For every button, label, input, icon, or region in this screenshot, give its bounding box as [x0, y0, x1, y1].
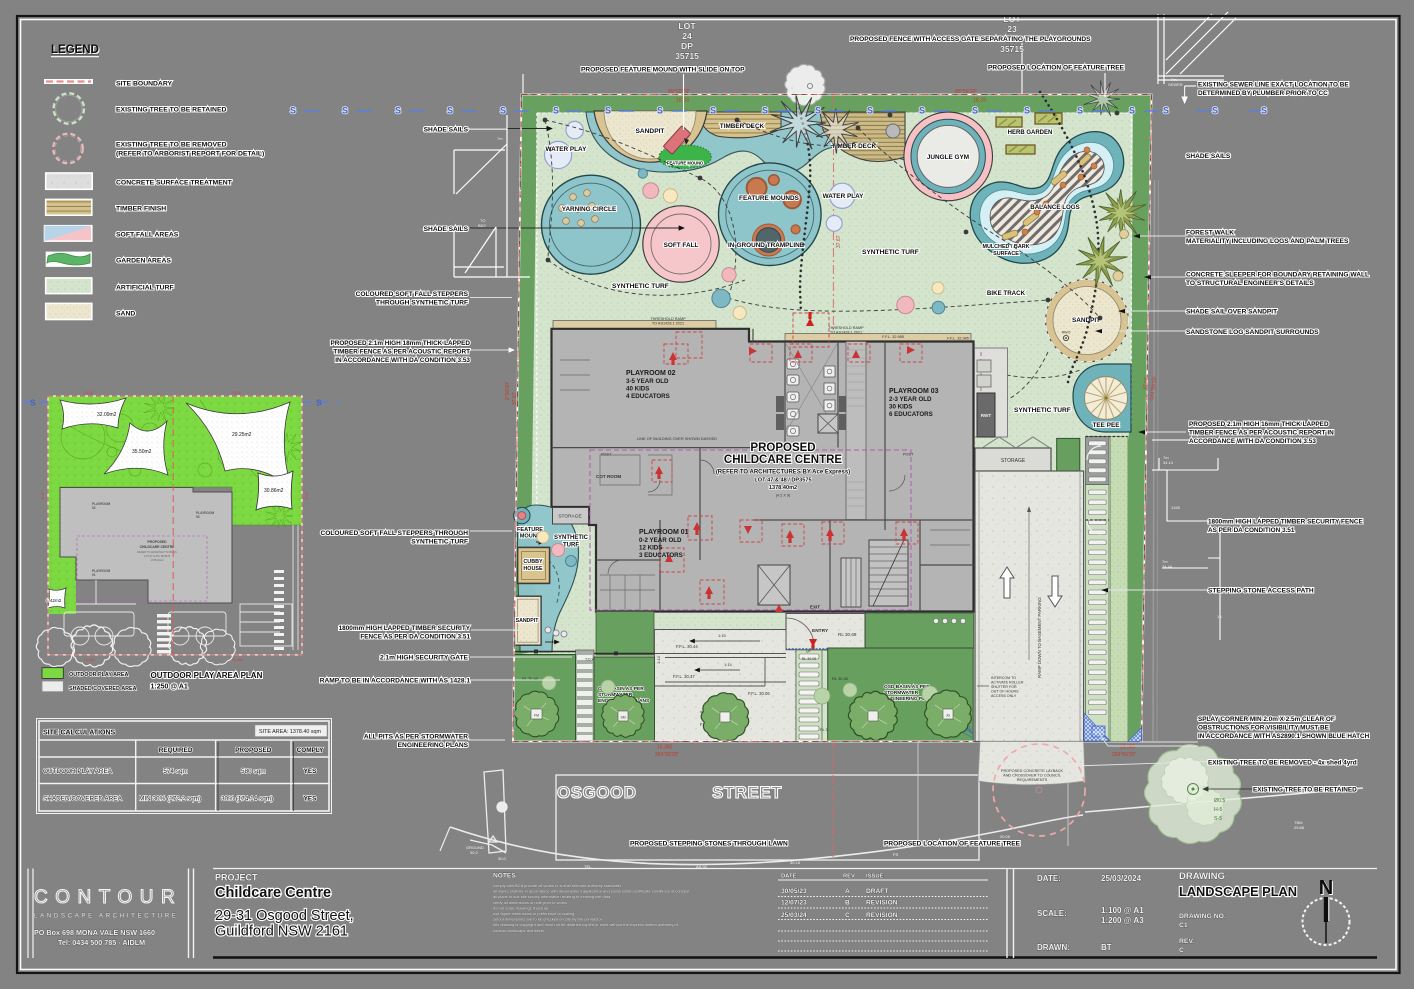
- svg-text:verify all dimensions on site: verify all dimensions on site prior to w…: [493, 900, 567, 905]
- svg-text:FM: FM: [534, 714, 539, 718]
- svg-text:1:14: 1:14: [724, 662, 733, 667]
- svg-text:S: S: [1163, 106, 1169, 116]
- svg-text:LANDSCAPE ARCHITECTURE: LANDSCAPE ARCHITECTURE: [34, 913, 179, 920]
- svg-text:2.0x2.5: 2.0x2.5: [1092, 731, 1103, 735]
- svg-text:PLAYROOM 03: PLAYROOM 03: [889, 388, 939, 395]
- svg-text:BIKE TRACK: BIKE TRACK: [987, 290, 1026, 297]
- svg-text:H-5: H-5: [1214, 807, 1222, 813]
- svg-text:269°59'20": 269°59'20": [655, 752, 679, 758]
- svg-text:S: S: [342, 106, 348, 116]
- svg-text:1800mm HIGH LAPPED TIMBER SECU: 1800mm HIGH LAPPED TIMBER SECURITY FENCE: [1208, 519, 1363, 526]
- svg-text:32.09m2: 32.09m2: [97, 412, 117, 418]
- svg-text:TO AS1428.1 2021: TO AS1428.1 2021: [652, 322, 684, 326]
- svg-text:STORAGE: STORAGE: [558, 514, 581, 520]
- svg-text:SANDPIT: SANDPIT: [1072, 317, 1100, 324]
- svg-text:S: S: [290, 106, 296, 116]
- svg-text:THRESHOLD RAMP: THRESHOLD RAMP: [828, 326, 864, 330]
- svg-text:18.33: 18.33: [232, 391, 241, 395]
- svg-text:RL 30.05: RL 30.05: [802, 657, 816, 661]
- svg-text:37.67: 37.67: [41, 491, 45, 500]
- svg-text:BALANCE LOGS: BALANCE LOGS: [1030, 204, 1080, 211]
- svg-text:LINE OF BUILDING OVER SHOWN DA: LINE OF BUILDING OVER SHOWN DASHED: [637, 436, 717, 441]
- svg-text:CHILDCARE CENTRE: CHILDCARE CENTRE: [140, 545, 176, 549]
- svg-text:RWT: RWT: [981, 413, 992, 418]
- svg-text:AND CROSSOVER TO COUNCIL: AND CROSSOVER TO COUNCIL: [1003, 774, 1061, 778]
- svg-text:YES: YES: [304, 796, 318, 803]
- svg-text:F.F.L. 30.06: F.F.L. 30.06: [748, 691, 770, 696]
- svg-text:PO Box 698 MONA VALE NSW 1660: PO Box 698 MONA VALE NSW 1660: [34, 928, 155, 937]
- svg-text:PS: PS: [893, 852, 899, 857]
- svg-text:PROPOSED LOCATION OF FEATURE T: PROPOSED LOCATION OF FEATURE TREE: [884, 841, 1021, 848]
- svg-text:S: S: [815, 106, 821, 116]
- svg-text:JG: JG: [946, 714, 951, 718]
- svg-text:S: S: [447, 106, 453, 116]
- svg-text:BT: BT: [1101, 943, 1112, 952]
- svg-text:SANDPIT: SANDPIT: [516, 618, 540, 624]
- svg-text:2.1m HIGH SECURITY GATE: 2.1m HIGH SECURITY GATE: [380, 655, 469, 662]
- svg-text:ARTIFICIAL TURF: ARTIFICIAL TURF: [116, 285, 174, 292]
- svg-text:37.67: 37.67: [305, 491, 309, 500]
- svg-text:1:14: 1:14: [656, 655, 661, 664]
- svg-text:S: S: [605, 106, 611, 116]
- svg-text:1:200 @ A3: 1:200 @ A3: [1101, 916, 1144, 925]
- svg-text:02: 02: [92, 506, 96, 510]
- svg-text:N: N: [1319, 877, 1333, 899]
- svg-text:S: S: [762, 106, 768, 116]
- svg-text:S: S: [867, 106, 873, 116]
- svg-text:ENTRY: ENTRY: [812, 628, 829, 634]
- svg-text:DRAWN:: DRAWN:: [1037, 943, 1070, 952]
- svg-text:SITE BOUNDARY: SITE BOUNDARY: [116, 81, 172, 88]
- svg-text:OUT OF HOURS: OUT OF HOURS: [991, 690, 1019, 694]
- svg-text:setout dimensions are to be ch: setout dimensions are to be checked on s…: [493, 917, 603, 922]
- svg-text:LOT 47 & 48 / DP3575: LOT 47 & 48 / DP3575: [144, 554, 171, 558]
- svg-text:CONTOUR: CONTOUR: [34, 887, 182, 908]
- svg-text:16.365: 16.365: [84, 658, 94, 662]
- svg-text:TO STRUCTURAL ENGINEER'S DETAI: TO STRUCTURAL ENGINEER'S DETAILS: [1186, 280, 1314, 287]
- svg-text:ACCESS ONLY: ACCESS ONLY: [991, 694, 1017, 698]
- svg-text:EXISTING TREE TO BE RETAINED: EXISTING TREE TO BE RETAINED: [1253, 787, 1357, 794]
- svg-text:IN-GROUND TRAMPLINE: IN-GROUND TRAMPLINE: [728, 242, 805, 249]
- svg-text:S: S: [1024, 106, 1030, 116]
- svg-text:CHILDCARE CENTRE: CHILDCARE CENTRE: [724, 454, 843, 466]
- svg-text:STORMWATER: STORMWATER: [884, 690, 919, 696]
- svg-text:Guildford NSW 2161: Guildford NSW 2161: [215, 924, 348, 940]
- svg-text:S: S: [395, 106, 401, 116]
- svg-text:TIMBER FINISH: TIMBER FINISH: [116, 206, 166, 213]
- svg-text:35715: 35715: [675, 51, 699, 61]
- svg-text:EXISTING SEWER LINE EXACT LOCA: EXISTING SEWER LINE EXACT LOCATION TO BE: [1198, 82, 1349, 89]
- svg-text:TURF: TURF: [563, 543, 579, 549]
- svg-text:30.86m2: 30.86m2: [264, 488, 284, 494]
- svg-text:BDY: BDY: [478, 223, 487, 228]
- svg-text:(4.2 X 9): (4.2 X 9): [776, 494, 791, 498]
- svg-text:STEPPING STONE ACCESS PATH: STEPPING STONE ACCESS PATH: [1208, 588, 1314, 595]
- svg-text:REFER TO ARCHITECT'S DWGS: REFER TO ARCHITECT'S DWGS: [137, 550, 177, 554]
- svg-text:30.0: 30.0: [498, 856, 507, 861]
- svg-text:37.67: 37.67: [512, 392, 518, 405]
- svg-text:PROPOSED 2.1m HIGH 18mm THICK: PROPOSED 2.1m HIGH 18mm THICK LAPPED: [330, 340, 470, 347]
- svg-text:35.50m2: 35.50m2: [132, 449, 152, 455]
- svg-text:S: S: [1129, 106, 1135, 116]
- svg-text:SHADED/COVERED AREA: SHADED/COVERED AREA: [69, 686, 137, 692]
- svg-text:REVISION: REVISION: [866, 912, 898, 919]
- svg-text:F.F.L. 30.37: F.F.L. 30.37: [673, 674, 695, 679]
- svg-text:3 EDUCATORS: 3 EDUCATORS: [639, 552, 683, 559]
- svg-text:S: S: [30, 398, 36, 408]
- svg-text:IN ACCORDANCE WITH AS2890.1 SH: IN ACCORDANCE WITH AS2890.1 SHOWN BLUE H…: [1198, 733, 1370, 740]
- svg-text:SYNTHETIC TURF: SYNTHETIC TURF: [411, 539, 468, 546]
- svg-text:SITE CALCULATIONS: SITE CALCULATIONS: [43, 730, 116, 737]
- svg-text:STREET: STREET: [712, 783, 782, 802]
- svg-text:S: S: [500, 106, 506, 116]
- svg-text:FEATURE MOUNDS: FEATURE MOUNDS: [739, 195, 800, 202]
- svg-text:S-5: S-5: [1214, 816, 1222, 822]
- svg-text:REVISION: REVISION: [866, 900, 898, 907]
- svg-text:RAMP DOWN TO BASEMENT PARKING: RAMP DOWN TO BASEMENT PARKING: [1037, 597, 1042, 678]
- svg-text:MIN 30% (172.2 sqm): MIN 30% (172.2 sqm): [139, 796, 201, 803]
- svg-text:269°59'20": 269°59'20": [1112, 752, 1136, 758]
- svg-text:S: S: [919, 106, 925, 116]
- svg-text:COLOURED SOFT FALL STEPPERS TH: COLOURED SOFT FALL STEPPERS THROUGH: [320, 530, 468, 537]
- svg-text:WATER PLAY: WATER PLAY: [546, 146, 588, 153]
- svg-text:1:250 @ A1: 1:250 @ A1: [151, 684, 188, 691]
- svg-text:OSGOOD: OSGOOD: [557, 783, 637, 802]
- svg-text:S: S: [316, 398, 322, 408]
- svg-text:POST: POST: [903, 453, 914, 457]
- svg-text:ALL PITS AS PER STORMWATER: ALL PITS AS PER STORMWATER: [364, 734, 468, 741]
- svg-text:MATERIALITY INCLUDING LOGS AND: MATERIALITY INCLUDING LOGS AND PALM TREE…: [1186, 238, 1349, 245]
- svg-text:574 sqm: 574 sqm: [163, 768, 188, 775]
- svg-text:COLOURED SOFT FALL STEPPERS: COLOURED SOFT FALL STEPPERS: [356, 291, 469, 298]
- svg-text:IN ACCORDANCE WITH DA CONDITIO: IN ACCORDANCE WITH DA CONDITION 3.53: [335, 357, 470, 364]
- svg-text:S: S: [710, 106, 716, 116]
- svg-text:PROJECT: PROJECT: [215, 873, 258, 883]
- svg-text:16.365: 16.365: [657, 745, 673, 751]
- svg-text:STORAGE: STORAGE: [1001, 458, 1026, 464]
- svg-text:1:100 @ A1: 1:100 @ A1: [1101, 906, 1144, 915]
- svg-text:PROPOSED: PROPOSED: [235, 747, 272, 754]
- svg-text:contour landscape architects: contour landscape architects: [493, 928, 544, 933]
- svg-text:PROPOSED 2.1m HIGH 16mm THICK: PROPOSED 2.1m HIGH 16mm THICK LAPPED: [1189, 421, 1329, 428]
- svg-text:OBSTRUCTIONS FOR VISIBILITY MU: OBSTRUCTIONS FOR VISIBILITY MUST BE: [1198, 725, 1330, 732]
- svg-text:ISSUE: ISSUE: [866, 874, 884, 880]
- svg-text:DRAWING: DRAWING: [1179, 871, 1225, 882]
- svg-text:DATE: DATE: [781, 874, 796, 880]
- svg-text:DETERMINED BY PLUMBER PRIOR TO: DETERMINED BY PLUMBER PRIOR TO CC: [1198, 90, 1328, 97]
- svg-text:FOREST WALK: FOREST WALK: [1186, 230, 1234, 237]
- svg-text:B: B: [845, 900, 850, 907]
- svg-text:SAND: SAND: [116, 311, 135, 318]
- svg-text:29.88: 29.88: [1294, 825, 1305, 830]
- svg-text:HERB GARDEN: HERB GARDEN: [1008, 130, 1053, 136]
- svg-text:DATE:: DATE:: [1037, 874, 1061, 883]
- svg-text:COMPLY: COMPLY: [297, 747, 324, 754]
- svg-text:12 KIDS: 12 KIDS: [639, 545, 662, 552]
- svg-text:AS PER DA CONDITION 3.51: AS PER DA CONDITION 3.51: [1208, 527, 1295, 534]
- svg-text:F.F.L. 32.985: F.F.L. 32.985: [947, 337, 969, 341]
- svg-text:F.F.L. 32.985: F.F.L. 32.985: [882, 335, 904, 339]
- svg-text:30.2: 30.2: [470, 850, 479, 855]
- svg-text:Tel: 0434 500 785 - AIDLM: Tel: 0434 500 785 - AIDLM: [58, 938, 145, 947]
- svg-text:REQUIRED: REQUIRED: [159, 747, 193, 754]
- svg-text:2°30'00": 2°30'00": [505, 381, 511, 400]
- svg-text:4 EDUCATORS: 4 EDUCATORS: [626, 393, 670, 400]
- svg-text:SYNTHETIC TURF: SYNTHETIC TURF: [862, 249, 919, 256]
- svg-text:COT ROOM: COT ROOM: [596, 474, 621, 479]
- svg-text:12/07/23: 12/07/23: [781, 900, 807, 907]
- svg-text:SHUTTER FOR: SHUTTER FOR: [991, 685, 1017, 689]
- svg-text:SM: SM: [620, 716, 625, 720]
- svg-text:C: C: [1179, 947, 1184, 954]
- svg-text:18.33: 18.33: [84, 391, 93, 395]
- svg-text:0-2 YEAR OLD: 0-2 YEAR OLD: [639, 537, 682, 544]
- svg-text:30 KIDS: 30 KIDS: [889, 404, 912, 411]
- svg-text:SYNTHETIC: SYNTHETIC: [554, 535, 589, 541]
- svg-text:PROPOSED FEATURE MOUND WITH SL: PROPOSED FEATURE MOUND WITH SLIDE ON TOP: [581, 67, 745, 74]
- svg-text:TIMBER FENCE AS PER ACOUSTIC R: TIMBER FENCE AS PER ACOUSTIC REPORT IN: [1189, 430, 1334, 437]
- svg-text:Ø0.5: Ø0.5: [1214, 798, 1225, 804]
- svg-text:03: 03: [196, 515, 200, 519]
- svg-text:OUTDOOR PLAY AREA: OUTDOOR PLAY AREA: [69, 672, 129, 678]
- svg-text:SHADED/COVERED AREA: SHADED/COVERED AREA: [43, 796, 123, 803]
- svg-text:LOT: LOT: [678, 21, 696, 31]
- svg-text:REQUIREMENTS: REQUIREMENTS: [1017, 778, 1048, 782]
- svg-text:comply with BCA provide all wo: comply with BCA provide all works to sui…: [493, 883, 621, 888]
- svg-text:SANDPIT: SANDPIT: [636, 128, 665, 135]
- svg-text:JUNGLE GYM: JUNGLE GYM: [927, 154, 969, 161]
- svg-text:EXISTING TREE TO BE REMOVED: EXISTING TREE TO BE REMOVED: [116, 142, 227, 149]
- svg-text:PROPOSED: PROPOSED: [750, 442, 815, 454]
- svg-text:SOFT FALL: SOFT FALL: [664, 242, 699, 249]
- svg-text:LOT 47 & 48 / DP3575: LOT 47 & 48 / DP3575: [754, 478, 811, 484]
- svg-text:do not scale drawings if unsur: do not scale drawings if unsure: [493, 905, 549, 910]
- svg-text:30.18: 30.18: [790, 860, 801, 865]
- svg-text:SHADE SAILS: SHADE SAILS: [424, 127, 469, 134]
- svg-text:all works shall be in accordan: all works shall be in accordance with de…: [493, 889, 690, 894]
- svg-text:NOTES: NOTES: [493, 873, 516, 880]
- svg-text:30.05: 30.05: [1000, 834, 1011, 839]
- svg-text:(REFER TO ARBORIST REPORT FOR: (REFER TO ARBORIST REPORT FOR DETAIL): [116, 151, 264, 158]
- svg-text:PROPOSED CONCRETE LAYBACK: PROPOSED CONCRETE LAYBACK: [1001, 769, 1064, 773]
- svg-text:CONCRETE SURFACE TREATMENT: CONCRETE SURFACE TREATMENT: [116, 180, 233, 187]
- svg-text:A: A: [845, 888, 850, 895]
- svg-text:ACTIVATE ROLLER: ACTIVATE ROLLER: [991, 681, 1024, 685]
- svg-text:DRAFT: DRAFT: [866, 888, 888, 895]
- svg-text:1345: 1345: [1171, 505, 1181, 510]
- svg-text:PLAYROOM 01: PLAYROOM 01: [639, 529, 689, 536]
- svg-text:7m: 7m: [497, 136, 503, 141]
- svg-text:UP: UP: [806, 650, 811, 654]
- svg-text:18.33: 18.33: [676, 98, 689, 104]
- svg-text:TEE PEE: TEE PEE: [1093, 422, 1121, 429]
- svg-text:GARDEN AREAS: GARDEN AREAS: [116, 258, 171, 265]
- svg-text:WATER PLAY: WATER PLAY: [823, 193, 865, 200]
- svg-text:HOUSE: HOUSE: [523, 566, 543, 572]
- svg-text:REV: REV: [843, 874, 855, 880]
- svg-text:Childcare Centre: Childcare Centre: [215, 885, 331, 901]
- svg-text:S: S: [553, 106, 559, 116]
- svg-text:S: S: [1261, 106, 1267, 116]
- svg-text:(REFER TO ARCHITECTURES BY Ace: (REFER TO ARCHITECTURES BY Ace Express): [716, 470, 850, 476]
- svg-text:16.365: 16.365: [1120, 745, 1136, 751]
- svg-text:29.25m2: 29.25m2: [232, 432, 252, 438]
- svg-text:S: S: [1212, 106, 1218, 116]
- svg-text:F.F.L. 30.44: F.F.L. 30.44: [676, 644, 698, 649]
- svg-text:SEWER: SEWER: [1168, 82, 1183, 87]
- svg-text:TIMBER FENCE AS PER ACOUSTIC R: TIMBER FENCE AS PER ACOUSTIC REPORT: [333, 349, 470, 356]
- svg-text:2-3 YEAR OLD: 2-3 YEAR OLD: [889, 396, 932, 403]
- svg-text:ENGINEERING PLANS: ENGINEERING PLANS: [398, 742, 469, 749]
- svg-text:CONCRETE SLEEPER FOR BOUNDARY: CONCRETE SLEEPER FOR BOUNDARY RETAINING …: [1186, 272, 1369, 279]
- svg-text:all plans to suit site survey: all plans to suit site survey informatio…: [493, 894, 611, 899]
- svg-text:30% (174.14 sqm): 30% (174.14 sqm): [221, 796, 273, 803]
- svg-text:C: C: [845, 912, 850, 919]
- svg-text:LANDSCAPE PLAN: LANDSCAPE PLAN: [1179, 884, 1297, 899]
- svg-text:THROUGH SYNTHETIC TURF: THROUGH SYNTHETIC TURF: [376, 300, 468, 307]
- svg-text:EXISTING TREE TO BE RETAINED: EXISTING TREE TO BE RETAINED: [116, 107, 226, 114]
- svg-text:YES: YES: [304, 768, 318, 775]
- svg-text:DP: DP: [681, 41, 693, 51]
- svg-text:SHADE SAILS: SHADE SAILS: [424, 226, 469, 233]
- svg-text:MULCHED / BARK: MULCHED / BARK: [982, 244, 1029, 250]
- svg-text:TO AS1428.1 2021: TO AS1428.1 2021: [830, 331, 862, 335]
- svg-text:SPLAY CORNER MIN 2.0m X 2.5m C: SPLAY CORNER MIN 2.0m X 2.5m CLEAR OF: [1198, 716, 1335, 723]
- svg-text:SITE AREA: 1378.40 sqm: SITE AREA: 1378.40 sqm: [259, 729, 322, 735]
- svg-text:EXISTING TREE TO BE REMOVED -: EXISTING TREE TO BE REMOVED - 4x shed 4y…: [1208, 760, 1357, 767]
- svg-text:PROPOSED STEPPING STONES THROU: PROPOSED STEPPING STONES THROUGH LAWN: [630, 841, 788, 848]
- svg-text:EXIT: EXIT: [810, 605, 820, 610]
- svg-text:CUBBY: CUBBY: [523, 559, 543, 565]
- svg-text:this drawing is copyright and: this drawing is copyright and must not b…: [493, 922, 679, 927]
- svg-text:RL 30.30: RL 30.30: [832, 676, 849, 681]
- svg-text:29-31 Osgood Street,: 29-31 Osgood Street,: [215, 908, 354, 924]
- svg-text:88°59'20": 88°59'20": [955, 89, 977, 95]
- svg-text:SYNTHETIC TURF: SYNTHETIC TURF: [612, 283, 669, 290]
- svg-text:ACCORDANCE WITH DA CONDITION 3: ACCORDANCE WITH DA CONDITION 3.53: [1189, 438, 1316, 445]
- svg-text:SHADE SAIL OVER SANDPIT: SHADE SAIL OVER SANDPIT: [1186, 309, 1277, 316]
- svg-text:S: S: [1077, 106, 1083, 116]
- svg-text:SYNTHETIC TURF: SYNTHETIC TURF: [1014, 407, 1071, 414]
- svg-text:S: S: [972, 106, 978, 116]
- svg-text:89°59'20": 89°59'20": [668, 89, 690, 95]
- svg-text:1800mm HIGH LAPPED TIMBER SECU: 1800mm HIGH LAPPED TIMBER SECURITY: [339, 625, 471, 632]
- svg-text:RAMP TO BE IN ACCORDANCE WITH: RAMP TO BE IN ACCORDANCE WITH AS 1428.1: [320, 678, 471, 685]
- svg-text:PLAYROOM 02: PLAYROOM 02: [626, 370, 676, 377]
- svg-text:SCALE:: SCALE:: [1037, 909, 1067, 918]
- svg-text:THRESHOLD RAMP: THRESHOLD RAMP: [650, 317, 686, 321]
- svg-text:RL 30.69: RL 30.69: [838, 632, 857, 637]
- svg-text:RWO: RWO: [1062, 331, 1071, 335]
- svg-text:16.365: 16.365: [232, 658, 242, 662]
- svg-text:C1: C1: [1179, 922, 1188, 929]
- svg-text:34.14: 34.14: [1163, 460, 1174, 465]
- svg-text:OUTDOOR PLAY AREA: OUTDOOR PLAY AREA: [43, 768, 113, 775]
- svg-text:1378.40m2: 1378.40m2: [769, 485, 797, 491]
- svg-text:FENCE AS PER DA CONDITION 3.51: FENCE AS PER DA CONDITION 3.51: [360, 634, 470, 641]
- svg-text:40 KIDS: 40 KIDS: [626, 386, 649, 393]
- svg-text:34.44: 34.44: [1162, 564, 1173, 569]
- svg-text:DRAWING NO:: DRAWING NO:: [1179, 913, 1226, 920]
- svg-text:37.67: 37.67: [836, 235, 842, 248]
- svg-text:SHADE SAILS: SHADE SAILS: [1186, 153, 1231, 160]
- svg-text:SANDSTONE LOG SANDPIT SURROUND: SANDSTONE LOG SANDPIT SURROUNDS: [1186, 329, 1319, 336]
- svg-text:INTERCOM TO: INTERCOM TO: [991, 676, 1016, 680]
- svg-text:1378.40m2: 1378.40m2: [151, 558, 165, 562]
- svg-text:S: S: [657, 106, 663, 116]
- svg-text:PROPOSED FENCE WITH ACCESS GAT: PROPOSED FENCE WITH ACCESS GATE SEPARATI…: [850, 36, 1091, 43]
- svg-text:25/03/24: 25/03/24: [781, 912, 807, 919]
- svg-text:PROPOSED: PROPOSED: [147, 540, 167, 544]
- svg-text:23: 23: [1007, 24, 1017, 34]
- svg-text:30/05/23: 30/05/23: [781, 888, 807, 895]
- svg-text:use figure dimensions in prefe: use figure dimensions in preference to s…: [493, 911, 574, 916]
- svg-text:TIMBER DECK: TIMBER DECK: [832, 143, 877, 150]
- svg-text:24: 24: [682, 31, 692, 41]
- svg-text:SURFACE: SURFACE: [993, 251, 1019, 257]
- svg-text:01: 01: [92, 573, 96, 577]
- svg-text:1:15: 1:15: [718, 633, 727, 638]
- svg-text:REV:: REV:: [1179, 938, 1195, 945]
- svg-text:6 EDUCATORS: 6 EDUCATORS: [889, 411, 933, 418]
- svg-text:PROPOSED LOCATION OF FEATURE T: PROPOSED LOCATION OF FEATURE TREE: [988, 65, 1125, 72]
- svg-text:15: 15: [1217, 614, 1222, 619]
- svg-text:POST: POST: [601, 453, 612, 457]
- svg-text:YARNING CIRCLE: YARNING CIRCLE: [562, 206, 617, 213]
- svg-text:SOFT FALL AREAS: SOFT FALL AREAS: [116, 232, 179, 239]
- svg-text:580 sqm: 580 sqm: [241, 768, 266, 775]
- svg-text:LEGEND: LEGEND: [51, 44, 99, 56]
- svg-text:35715: 35715: [1000, 44, 1024, 54]
- svg-text:OUTDOOR PLAY AREA PLAN: OUTDOOR PLAY AREA PLAN: [151, 671, 263, 680]
- svg-text:18.33: 18.33: [973, 98, 986, 104]
- svg-text:25/03/2024: 25/03/2024: [1101, 874, 1142, 883]
- svg-text:3-5 YEAR OLD: 3-5 YEAR OLD: [626, 378, 669, 385]
